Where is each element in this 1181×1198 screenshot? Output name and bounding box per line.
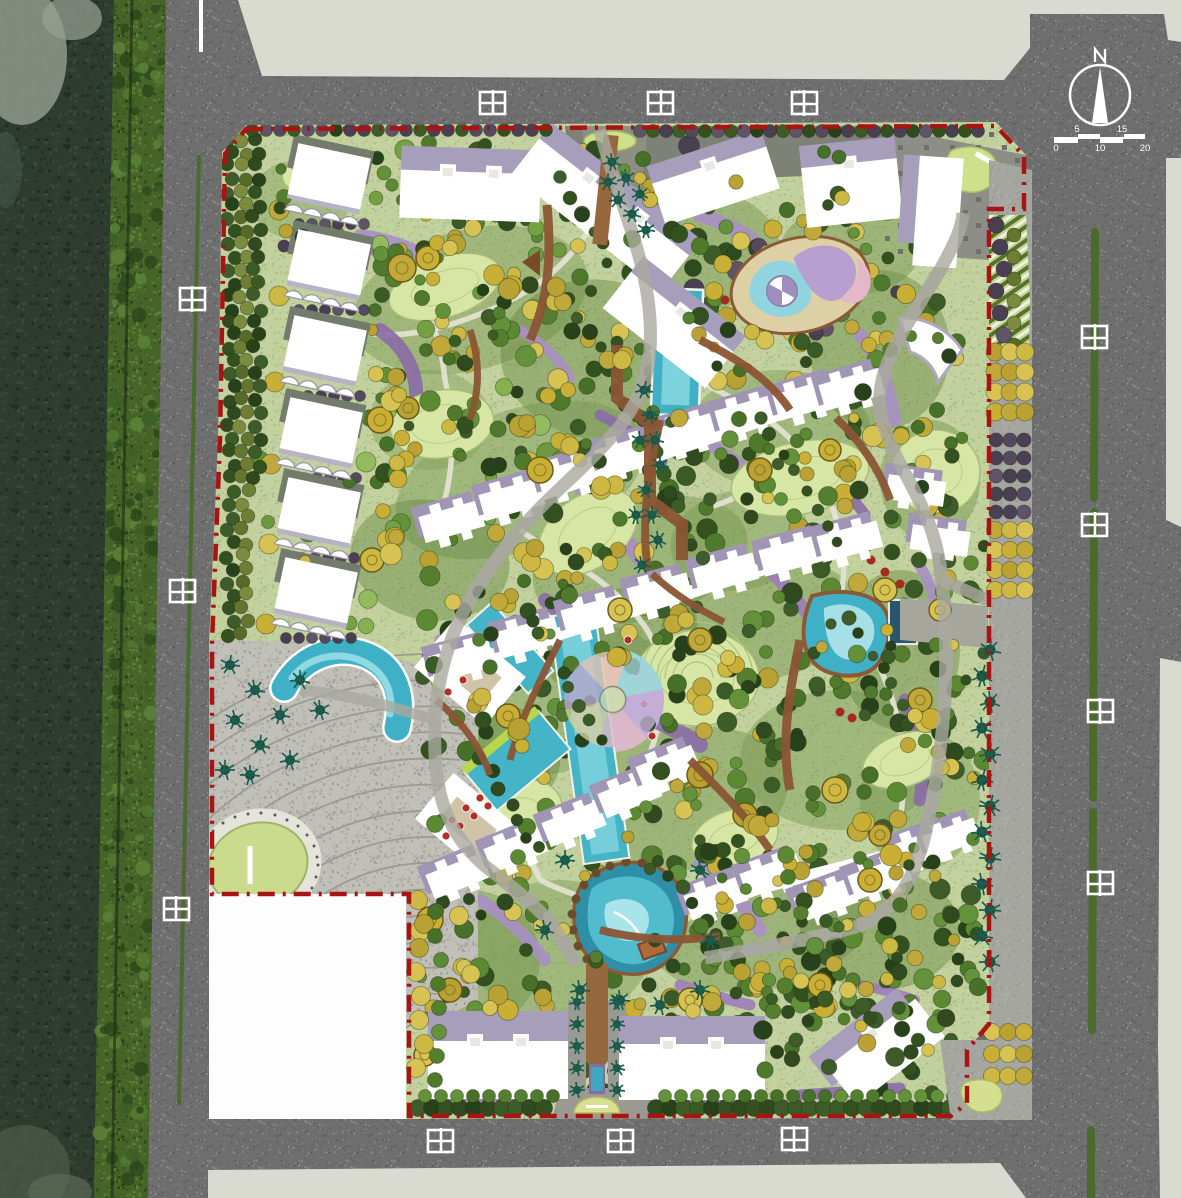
svg-text:5: 5	[1074, 124, 1079, 135]
svg-text:15: 15	[1117, 124, 1128, 135]
svg-text:0: 0	[1053, 143, 1058, 154]
svg-text:20: 20	[1140, 143, 1151, 154]
svg-text:10: 10	[1095, 143, 1106, 154]
